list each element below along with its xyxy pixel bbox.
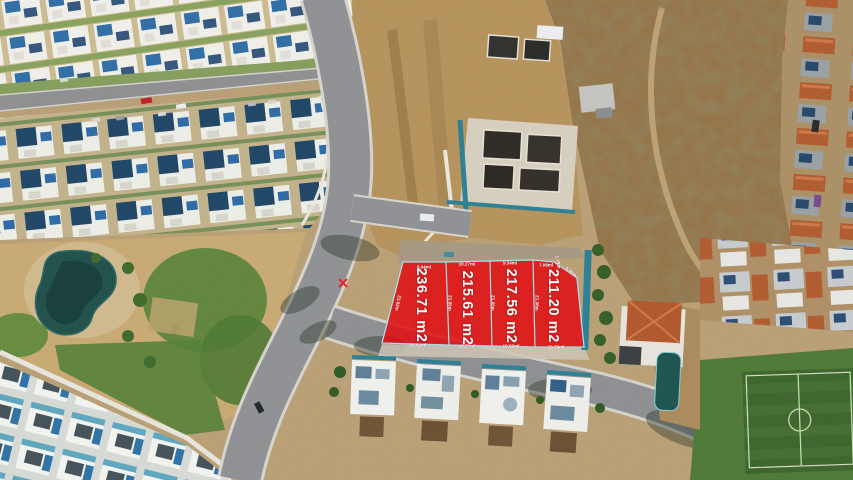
lot-overlay-outline	[382, 260, 584, 347]
aerial-photo: 236.71 m2 215.61 m2 217.56 m2 211.20 m2 …	[0, 0, 853, 480]
photo-grain	[0, 0, 853, 480]
aerial-scene	[0, 0, 853, 480]
